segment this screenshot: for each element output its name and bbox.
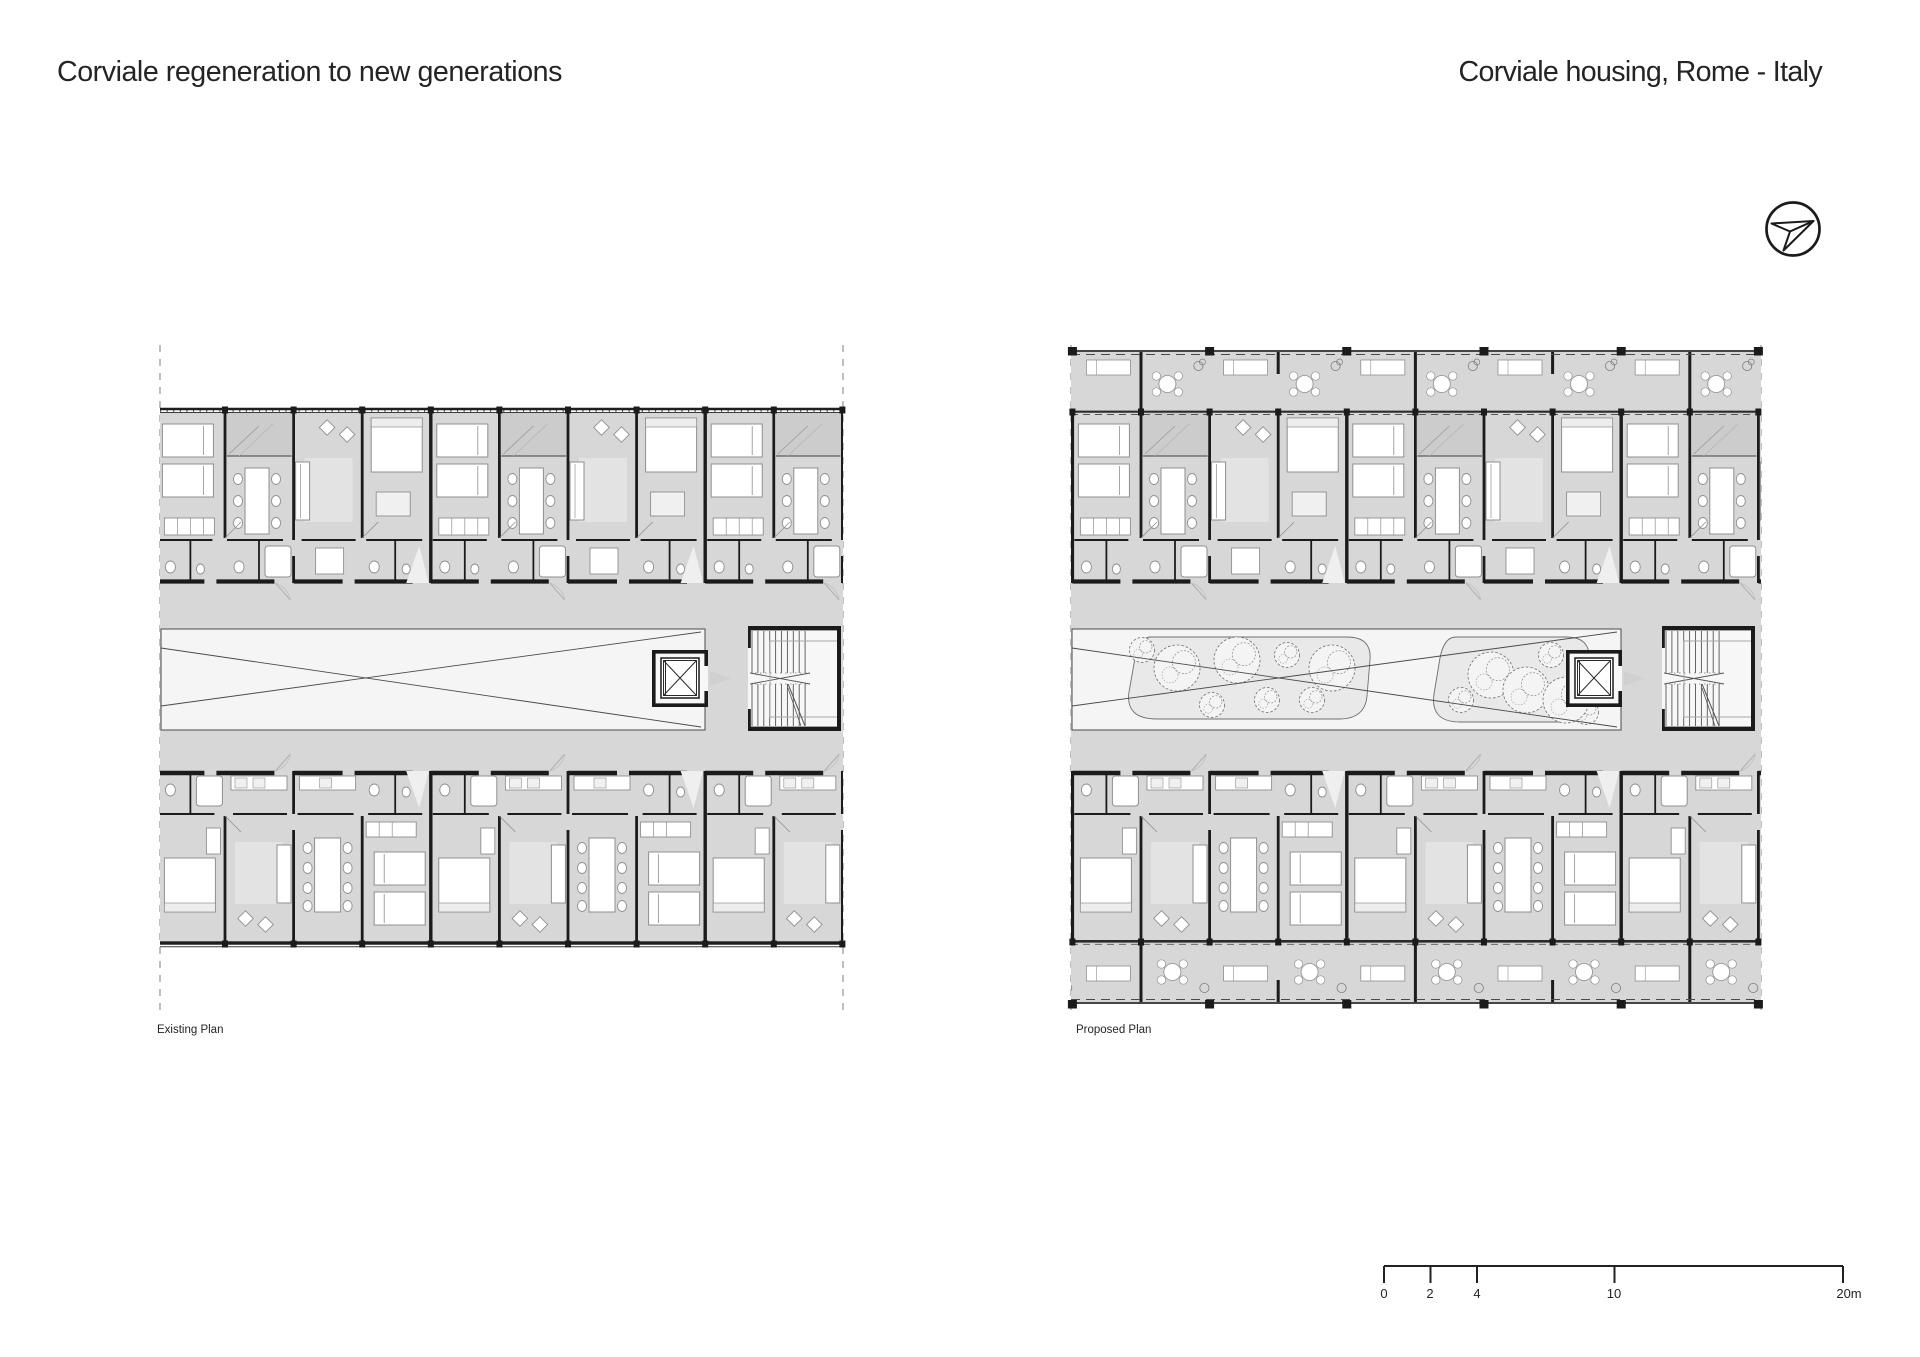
svg-text:Proposed Plan: Proposed Plan — [1076, 1024, 1151, 1036]
svg-text:20m: 20m — [1836, 1286, 1861, 1301]
svg-text:0: 0 — [1380, 1286, 1387, 1301]
svg-text:2: 2 — [1426, 1286, 1433, 1301]
svg-text:Existing Plan: Existing Plan — [157, 1024, 223, 1036]
svg-text:10: 10 — [1607, 1286, 1621, 1301]
svg-text:Corviale housing, Rome - Italy: Corviale housing, Rome - Italy — [1458, 56, 1823, 88]
svg-text:4: 4 — [1473, 1286, 1480, 1301]
svg-text:Corviale regeneration to new g: Corviale regeneration to new generations — [57, 56, 562, 88]
